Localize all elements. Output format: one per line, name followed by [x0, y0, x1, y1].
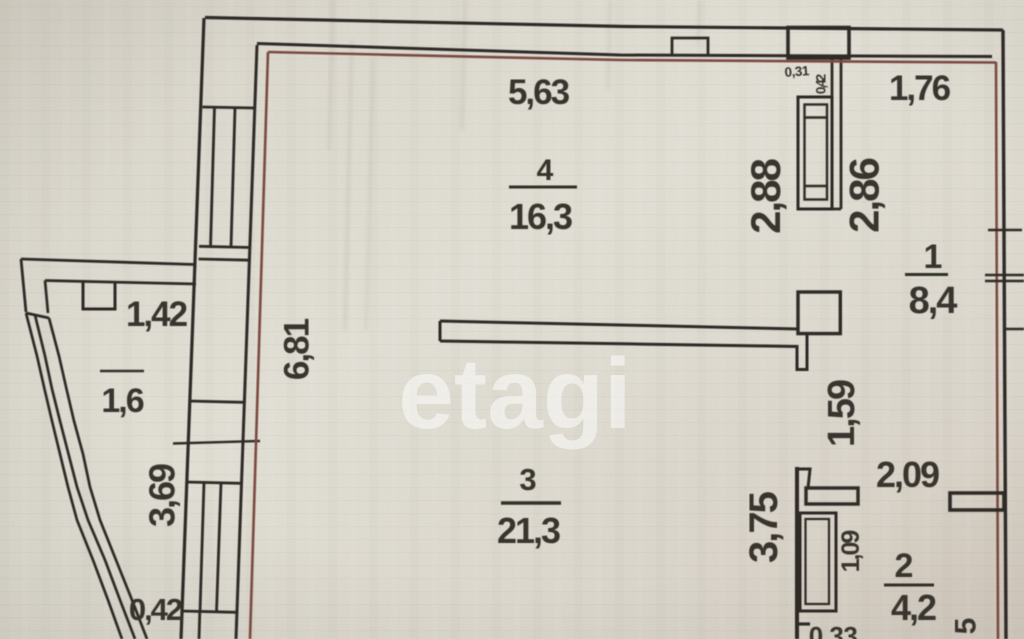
svg-text:4,2: 4,2	[891, 587, 936, 628]
svg-text:0,42: 0,42	[129, 592, 182, 627]
svg-text:3,69: 3,69	[142, 464, 183, 527]
svg-text:1,42: 1,42	[126, 295, 188, 334]
svg-text:5,63: 5,63	[508, 73, 570, 112]
svg-text:5: 5	[950, 618, 983, 634]
svg-text:1,6: 1,6	[101, 382, 143, 420]
svg-text:2: 2	[895, 547, 913, 585]
svg-text:etagi: etagi	[398, 338, 631, 450]
svg-text:2,86: 2,86	[841, 158, 888, 232]
svg-text:1,76: 1,76	[889, 69, 951, 108]
svg-text:1: 1	[924, 238, 942, 276]
svg-text:16,3: 16,3	[509, 196, 572, 237]
svg-text:1,09: 1,09	[837, 531, 865, 573]
svg-text:3,75: 3,75	[742, 491, 786, 563]
svg-text:8,4: 8,4	[909, 280, 958, 322]
svg-text:3: 3	[519, 462, 536, 497]
svg-text:0,42: 0,42	[814, 74, 829, 94]
svg-text:1,59: 1,59	[821, 380, 863, 447]
svg-text:2,09: 2,09	[876, 454, 939, 495]
svg-text:6,81: 6,81	[278, 318, 317, 380]
svg-text:0,33: 0,33	[809, 621, 858, 639]
svg-text:0,31: 0,31	[784, 63, 810, 80]
svg-text:21,3: 21,3	[497, 510, 560, 551]
svg-text:2,88: 2,88	[742, 158, 789, 233]
svg-text:4: 4	[537, 154, 554, 187]
